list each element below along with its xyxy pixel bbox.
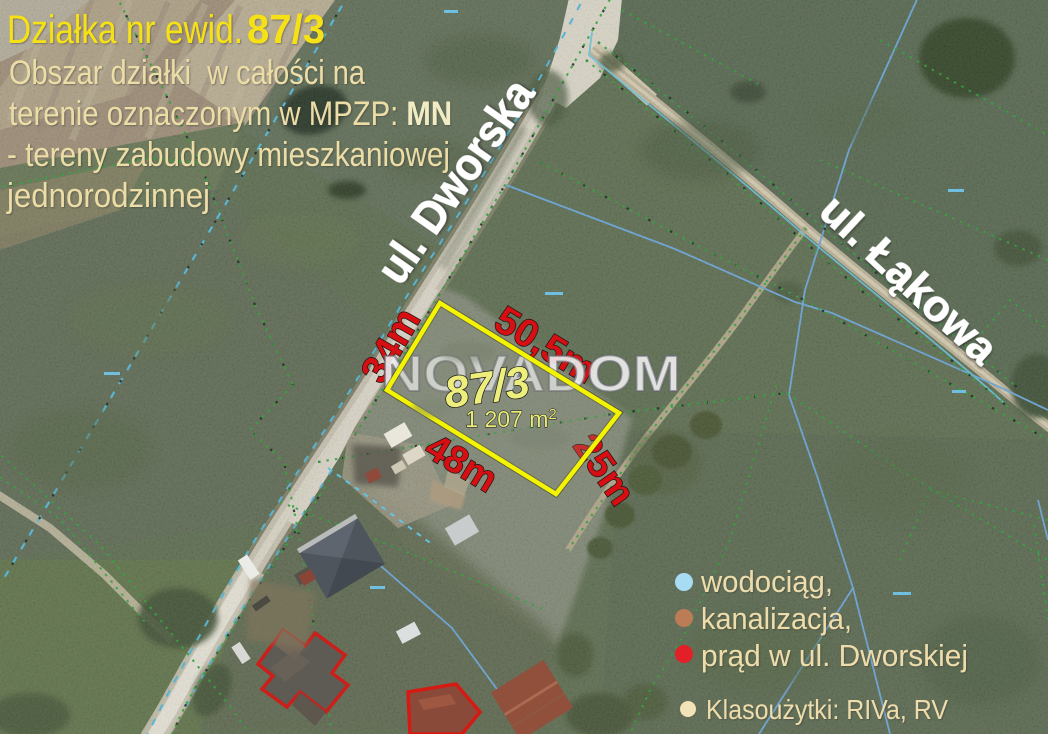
svg-text:terenie oznaczonym w MPZP: MN: terenie oznaczonym w MPZP: MN <box>9 95 452 133</box>
svg-text:Działka nr ewid.: Działka nr ewid. <box>7 8 243 52</box>
svg-text:prąd w ul. Dworskiej: prąd w ul. Dworskiej <box>701 638 968 673</box>
svg-text:wodociąg,: wodociąg, <box>700 564 833 599</box>
svg-text:kanalizacja,: kanalizacja, <box>701 601 852 636</box>
svg-text:- tereny zabudowy mieszkaniowe: - tereny zabudowy mieszkaniowej <box>7 136 450 174</box>
svg-text:Obszar działki w całości na: Obszar działki w całości na <box>9 54 365 92</box>
svg-text:jednorodzinnej: jednorodzinnej <box>6 177 210 215</box>
svg-text:1 207 m2: 1 207 m2 <box>465 406 556 432</box>
svg-text:87/3: 87/3 <box>247 6 325 52</box>
svg-text:Klasoużytki: RIVa, RV: Klasoużytki: RIVa, RV <box>706 694 948 725</box>
